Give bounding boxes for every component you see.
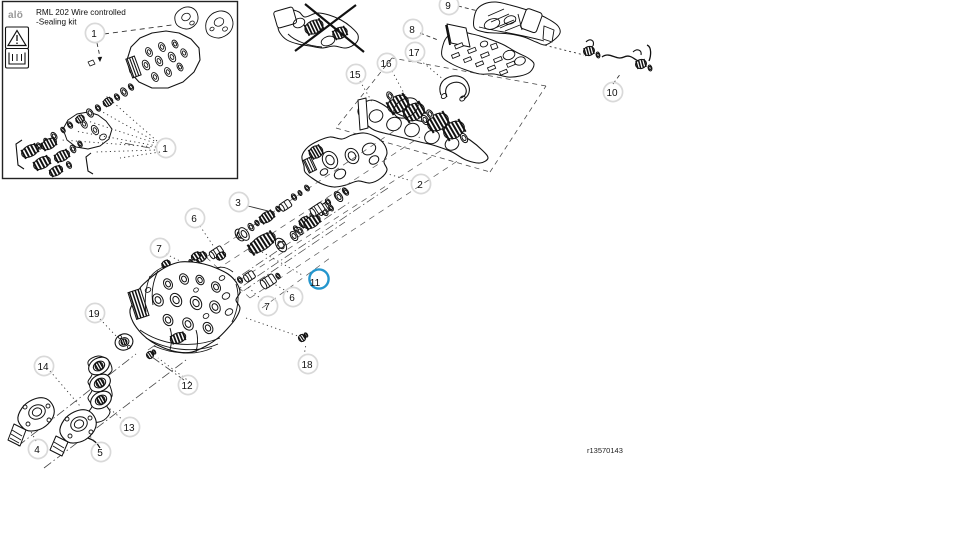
svg-text:5: 5 <box>97 448 103 459</box>
svg-text:7: 7 <box>156 244 162 255</box>
svg-text:r13570143: r13570143 <box>587 446 623 455</box>
svg-text:19: 19 <box>88 309 100 320</box>
svg-text:15: 15 <box>349 70 361 81</box>
svg-text:1: 1 <box>162 144 168 155</box>
svg-text:7: 7 <box>264 302 270 313</box>
svg-text:4: 4 <box>34 445 40 456</box>
svg-text:11: 11 <box>310 278 321 289</box>
svg-text:1: 1 <box>91 29 97 40</box>
svg-text:18: 18 <box>301 360 313 371</box>
svg-text:-Sealing kit: -Sealing kit <box>36 18 77 27</box>
svg-text:14: 14 <box>37 362 49 373</box>
svg-text:RML 202 Wire controlled: RML 202 Wire controlled <box>36 8 126 17</box>
svg-text:17: 17 <box>408 48 420 59</box>
svg-text:9: 9 <box>445 1 451 12</box>
svg-text:16: 16 <box>380 59 392 70</box>
svg-text:6: 6 <box>289 293 295 304</box>
svg-text:3: 3 <box>235 198 241 209</box>
svg-text:12: 12 <box>181 381 193 392</box>
svg-text:13: 13 <box>123 423 135 434</box>
svg-text:8: 8 <box>409 25 415 36</box>
svg-text:10: 10 <box>606 88 618 99</box>
svg-text:alö: alö <box>8 10 23 21</box>
svg-text:2: 2 <box>417 180 423 191</box>
svg-text:6: 6 <box>191 214 197 225</box>
